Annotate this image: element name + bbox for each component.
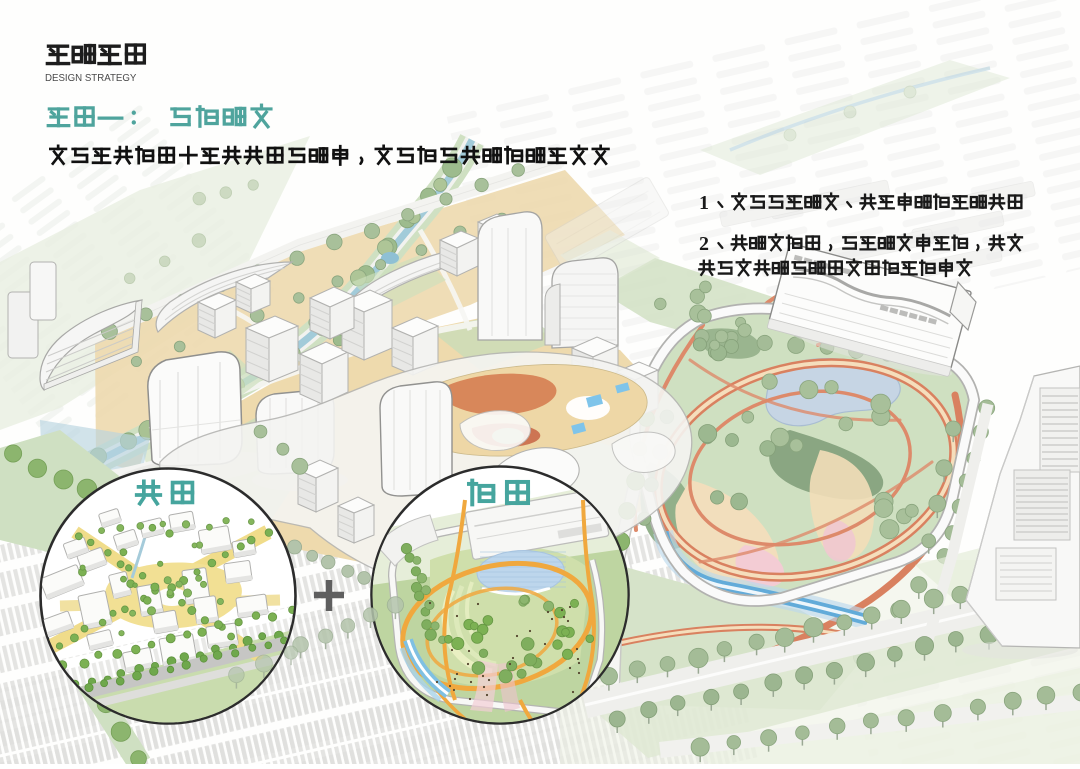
svg-text:1: 1 [699,192,709,214]
svg-text:DESIGN STRATEGY: DESIGN STRATEGY [45,73,137,84]
svg-text:2: 2 [699,233,709,255]
